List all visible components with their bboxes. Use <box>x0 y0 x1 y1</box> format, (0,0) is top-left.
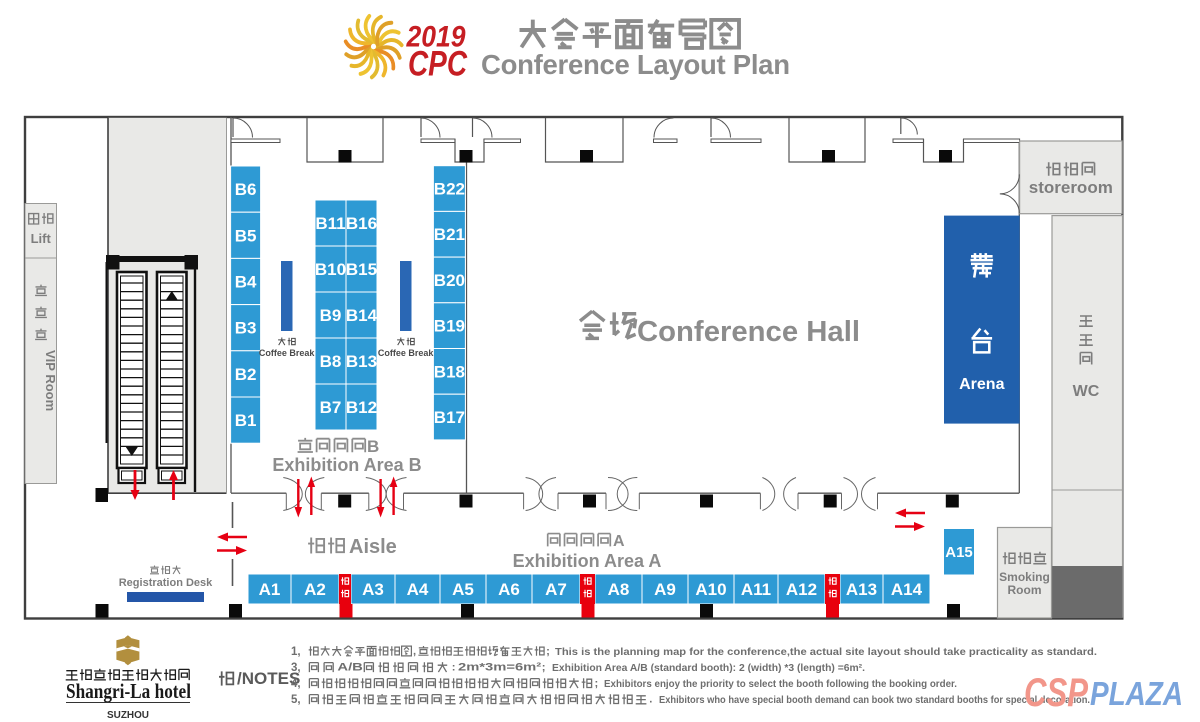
svg-text:B7: B7 <box>320 398 342 417</box>
svg-text:B12: B12 <box>346 398 377 417</box>
svg-text:B21: B21 <box>434 225 465 244</box>
svg-text:A14: A14 <box>891 580 923 599</box>
svg-text:B22: B22 <box>434 180 465 199</box>
svg-text:4,: 4, <box>291 678 301 690</box>
svg-text:Coffee Break: Coffee Break <box>378 348 435 358</box>
svg-text:B19: B19 <box>434 317 465 336</box>
svg-text:;: ; <box>546 646 550 658</box>
svg-text:A8: A8 <box>608 580 630 599</box>
svg-text:B20: B20 <box>434 271 465 290</box>
svg-text:A6: A6 <box>498 580 520 599</box>
svg-text:A5: A5 <box>452 580 474 599</box>
svg-text:Smoking: Smoking <box>999 570 1050 584</box>
svg-text:A/B: A/B <box>337 662 363 674</box>
svg-text:PLAZA: PLAZA <box>1090 675 1183 712</box>
svg-text:A4: A4 <box>407 580 429 599</box>
svg-text:A12: A12 <box>786 580 817 599</box>
svg-text:A7: A7 <box>545 580 567 599</box>
svg-text:Exhibition Area A/B (standard: Exhibition Area A/B (standard booth): 2 … <box>552 662 865 674</box>
svg-text:2m*3m=6m²: 2m*3m=6m² <box>458 662 542 674</box>
svg-text:B13: B13 <box>346 352 377 371</box>
svg-text:Arena: Arena <box>959 376 1004 393</box>
svg-text:This is the planning map for t: This is the planning map for the confere… <box>555 646 1097 658</box>
svg-text:Coffee Break: Coffee Break <box>259 348 316 358</box>
svg-text:Shangri-La hotel: Shangri-La hotel <box>66 679 191 703</box>
svg-text:Conference Hall: Conference Hall <box>637 316 860 348</box>
svg-text:Registration Desk: Registration Desk <box>119 577 213 589</box>
svg-text:B17: B17 <box>434 408 465 427</box>
svg-text:Conference Layout Plan: Conference Layout Plan <box>481 49 790 80</box>
svg-text:CPC: CPC <box>408 45 468 84</box>
svg-text::: : <box>452 662 456 674</box>
svg-text:B3: B3 <box>235 319 257 338</box>
svg-text:B: B <box>367 437 379 456</box>
svg-text:B5: B5 <box>235 226 257 245</box>
svg-text:Exhibition Area A: Exhibition Area A <box>513 551 662 571</box>
svg-text:1,: 1, <box>291 646 301 658</box>
svg-text:A15: A15 <box>945 544 973 561</box>
svg-text:VIP Room: VIP Room <box>43 350 58 411</box>
svg-text:;: ; <box>542 662 546 674</box>
svg-text:;: ; <box>595 678 599 690</box>
svg-text:storeroom: storeroom <box>1029 178 1113 197</box>
svg-text:A1: A1 <box>259 580 281 599</box>
svg-text:A10: A10 <box>695 580 726 599</box>
svg-text:Lift: Lift <box>31 231 52 246</box>
svg-text:,: , <box>413 646 416 658</box>
svg-text:Exhibition Area B: Exhibition Area B <box>272 455 421 475</box>
svg-text:Aisle: Aisle <box>349 536 397 558</box>
svg-text:A9: A9 <box>654 580 676 599</box>
svg-text:WC: WC <box>1073 383 1100 400</box>
svg-text:3,: 3, <box>291 662 301 674</box>
svg-text:B11: B11 <box>315 214 345 233</box>
svg-text:A11: A11 <box>741 580 771 599</box>
svg-text:A2: A2 <box>304 580 326 599</box>
svg-text:.: . <box>649 694 652 706</box>
svg-text:SUZHOU: SUZHOU <box>107 709 149 721</box>
svg-text:B2: B2 <box>235 365 257 384</box>
svg-text:CSP: CSP <box>1024 671 1088 715</box>
svg-text:A3: A3 <box>362 580 384 599</box>
svg-text:B16: B16 <box>346 214 377 233</box>
svg-text:B6: B6 <box>235 180 257 199</box>
svg-text:B4: B4 <box>235 273 257 292</box>
svg-text:5,: 5, <box>291 694 301 706</box>
svg-text:Exhibitors enjoy the priority: Exhibitors enjoy the priority to select … <box>604 678 957 690</box>
svg-text:B18: B18 <box>434 362 465 381</box>
svg-text:B15: B15 <box>346 260 377 279</box>
svg-text:B14: B14 <box>346 306 378 325</box>
svg-text:B9: B9 <box>320 306 342 325</box>
svg-text:Room: Room <box>1008 583 1042 597</box>
svg-text:B1: B1 <box>235 411 257 430</box>
svg-text:B8: B8 <box>320 352 342 371</box>
svg-text:A: A <box>613 533 625 550</box>
svg-text:A13: A13 <box>846 580 877 599</box>
svg-text:B10: B10 <box>315 260 346 279</box>
